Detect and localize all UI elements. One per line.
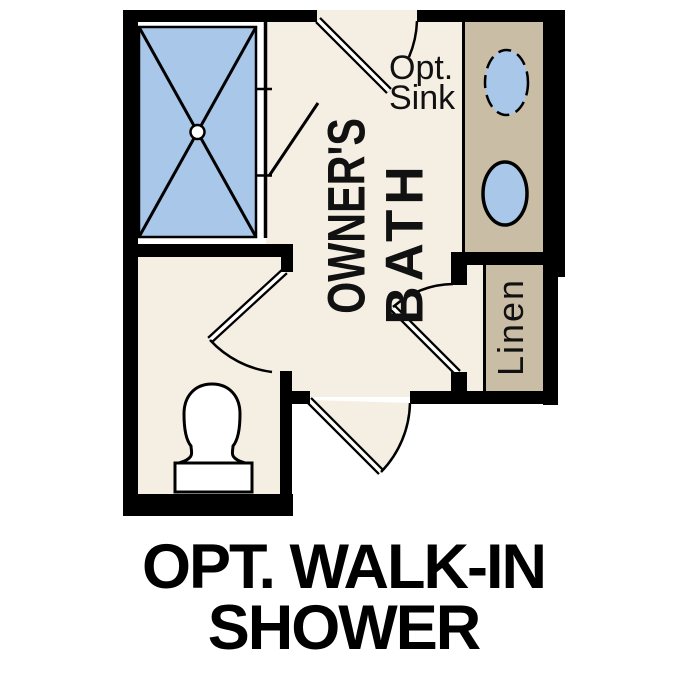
top-door-opening-floor <box>317 10 417 22</box>
optional-sink-basin-icon <box>485 50 528 115</box>
wall-top-left <box>123 10 317 22</box>
figure-caption: OPT. WALK-IN SHOWER <box>0 537 687 659</box>
wall-top-right <box>417 10 565 22</box>
room-label-owners: OWNER'S <box>321 118 374 314</box>
shower-drain-icon <box>191 125 205 139</box>
caption-line1: OPT. WALK-IN <box>0 537 687 598</box>
wall-right-lower <box>543 277 558 405</box>
wall-left <box>123 10 138 516</box>
linen-door-jamb-bottom <box>451 372 467 391</box>
linen-label: Linen <box>490 278 532 376</box>
opt-sink-label: Opt. Sink <box>389 53 455 113</box>
caption-line2: SHOWER <box>0 598 687 659</box>
wall-toilet-bottom <box>123 494 293 516</box>
toilet-tank <box>175 463 252 492</box>
toilet-door-jamb <box>281 244 293 272</box>
floor-plan-figure: OWNER'S BATH Opt. Sink Linen OPT. WALK-I… <box>0 0 687 687</box>
linen-door-jamb-top <box>451 252 467 285</box>
opt-sink-label-line2: Sink <box>389 83 455 113</box>
wall-right-upper <box>543 10 565 277</box>
bottom-door-jamb <box>292 391 310 404</box>
wall-bottom-right <box>410 391 557 404</box>
wall-shower-toilet-divider <box>123 244 293 257</box>
room-label-bath: BATH <box>379 161 432 324</box>
sink-basin-icon <box>483 162 527 225</box>
